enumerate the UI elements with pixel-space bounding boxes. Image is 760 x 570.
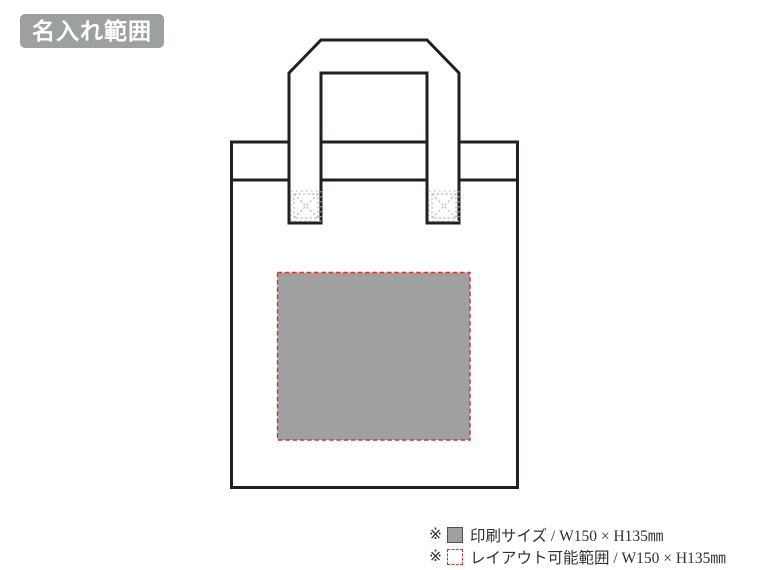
layout-range-swatch-icon (447, 549, 463, 565)
product-print-area-diagram: 名入れ範囲 ※ 印刷サイズ / W150 × H (0, 0, 760, 570)
legend-label-print-size: 印刷サイズ / W150 × H135㎜ (470, 524, 663, 546)
legend-row-layout-range: ※ レイアウト可能範囲 / W150 × H135㎜ (429, 546, 726, 568)
legend: ※ 印刷サイズ / W150 × H135㎜ ※ レイアウト可能範囲 / W15… (429, 524, 726, 568)
legend-label-layout-range: レイアウト可能範囲 / W150 × H135㎜ (470, 546, 726, 568)
legend-marker: ※ (429, 549, 442, 565)
legend-marker: ※ (429, 527, 442, 543)
print-size-swatch-icon (447, 527, 463, 543)
legend-row-print-size: ※ 印刷サイズ / W150 × H135㎜ (429, 524, 726, 546)
print-area (278, 273, 471, 441)
tote-bag-drawing (0, 0, 760, 570)
